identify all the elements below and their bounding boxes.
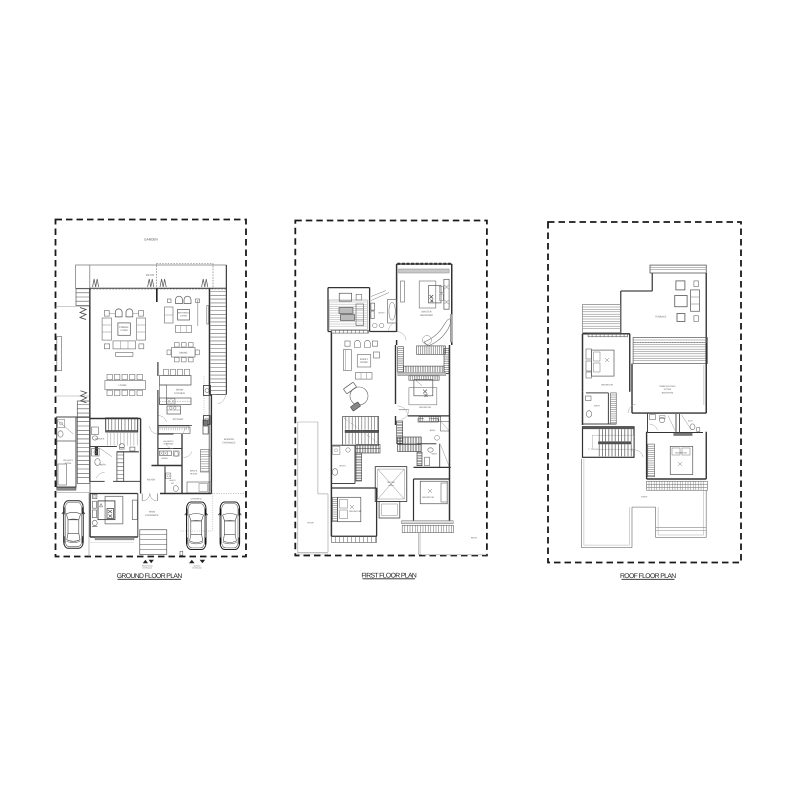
svg-text:DRIVER'S: DRIVER'S — [63, 459, 73, 462]
svg-text:ROOM: ROOM — [65, 462, 72, 465]
svg-text:ROOF: ROOF — [471, 537, 478, 540]
svg-text:LIVING: LIVING — [120, 329, 128, 332]
svg-text:BATH: BATH — [430, 429, 436, 432]
svg-text:MAID'S: MAID'S — [169, 479, 176, 482]
svg-text:FIRST FLOOR PLAN: FIRST FLOOR PLAN — [361, 572, 417, 579]
svg-text:ROOM: ROOM — [360, 361, 367, 364]
svg-text:ROOF: ROOF — [641, 495, 648, 498]
svg-text:POWDER: POWDER — [95, 437, 105, 440]
svg-text:ENTRANCE: ENTRANCE — [145, 514, 159, 517]
svg-text:WASH: WASH — [161, 457, 168, 460]
svg-text:BATH: BATH — [100, 464, 106, 467]
svg-text:ROOM: ROOM — [190, 473, 197, 476]
svg-text:ROOF: ROOF — [308, 522, 315, 525]
svg-text:GAMES ROOM /: GAMES ROOM / — [659, 385, 676, 388]
svg-text:TERRACE: TERRACE — [655, 315, 667, 318]
svg-text:STORAGE: STORAGE — [163, 443, 174, 446]
svg-text:BEDROOM: BEDROOM — [601, 383, 612, 386]
svg-text:C: C — [631, 449, 633, 452]
svg-text:FOYER: FOYER — [147, 479, 156, 482]
svg-text:BATH: BATH — [594, 405, 600, 408]
svg-text:GARDEN: GARDEN — [144, 238, 158, 242]
svg-text:DINING: DINING — [179, 352, 188, 355]
svg-text:LIVING: LIVING — [118, 384, 126, 387]
svg-text:ENTRANCE: ENTRANCE — [192, 567, 202, 570]
svg-text:MAID'S: MAID'S — [190, 470, 198, 473]
svg-text:BEDROOM: BEDROOM — [675, 451, 686, 454]
svg-text:GROUND FLOOR PLAN: GROUND FLOOR PLAN — [117, 573, 183, 580]
svg-text:EXTRA: EXTRA — [664, 388, 672, 391]
svg-text:COVERED: COVERED — [191, 498, 202, 501]
svg-text:BEDROOM: BEDROOM — [422, 496, 433, 499]
svg-text:INFORMAL: INFORMAL — [178, 312, 190, 315]
svg-text:BATH: BATH — [688, 419, 694, 422]
svg-text:BATH: BATH — [432, 453, 438, 456]
svg-text:BATH: BATH — [340, 465, 346, 468]
svg-text:BEDROOM: BEDROOM — [419, 406, 430, 409]
svg-text:BEDROOM: BEDROOM — [349, 510, 360, 513]
svg-text:LIVING: LIVING — [180, 315, 187, 318]
svg-text:BATH: BATH — [379, 312, 385, 315]
svg-text:ENTRANCE: ENTRANCE — [143, 567, 153, 570]
svg-text:DRYING: DRYING — [387, 481, 395, 484]
svg-text:FORMAL: FORMAL — [119, 326, 129, 329]
svg-text:LAUNDRY /: LAUNDRY / — [163, 440, 174, 443]
svg-text:KITCHEN: KITCHEN — [174, 392, 185, 395]
svg-text:KITCHEN: KITCHEN — [173, 418, 184, 421]
svg-text:AREA: AREA — [388, 484, 394, 487]
svg-text:ROOF FLOOR PLAN: ROOF FLOOR PLAN — [620, 573, 676, 580]
svg-text:BEDROOM: BEDROOM — [420, 314, 432, 317]
svg-text:ENTRANCE: ENTRANCE — [222, 441, 236, 444]
svg-text:PATIO: PATIO — [146, 273, 155, 277]
svg-text:FAMILY: FAMILY — [360, 358, 368, 361]
svg-text:BEDROOM: BEDROOM — [662, 391, 673, 394]
